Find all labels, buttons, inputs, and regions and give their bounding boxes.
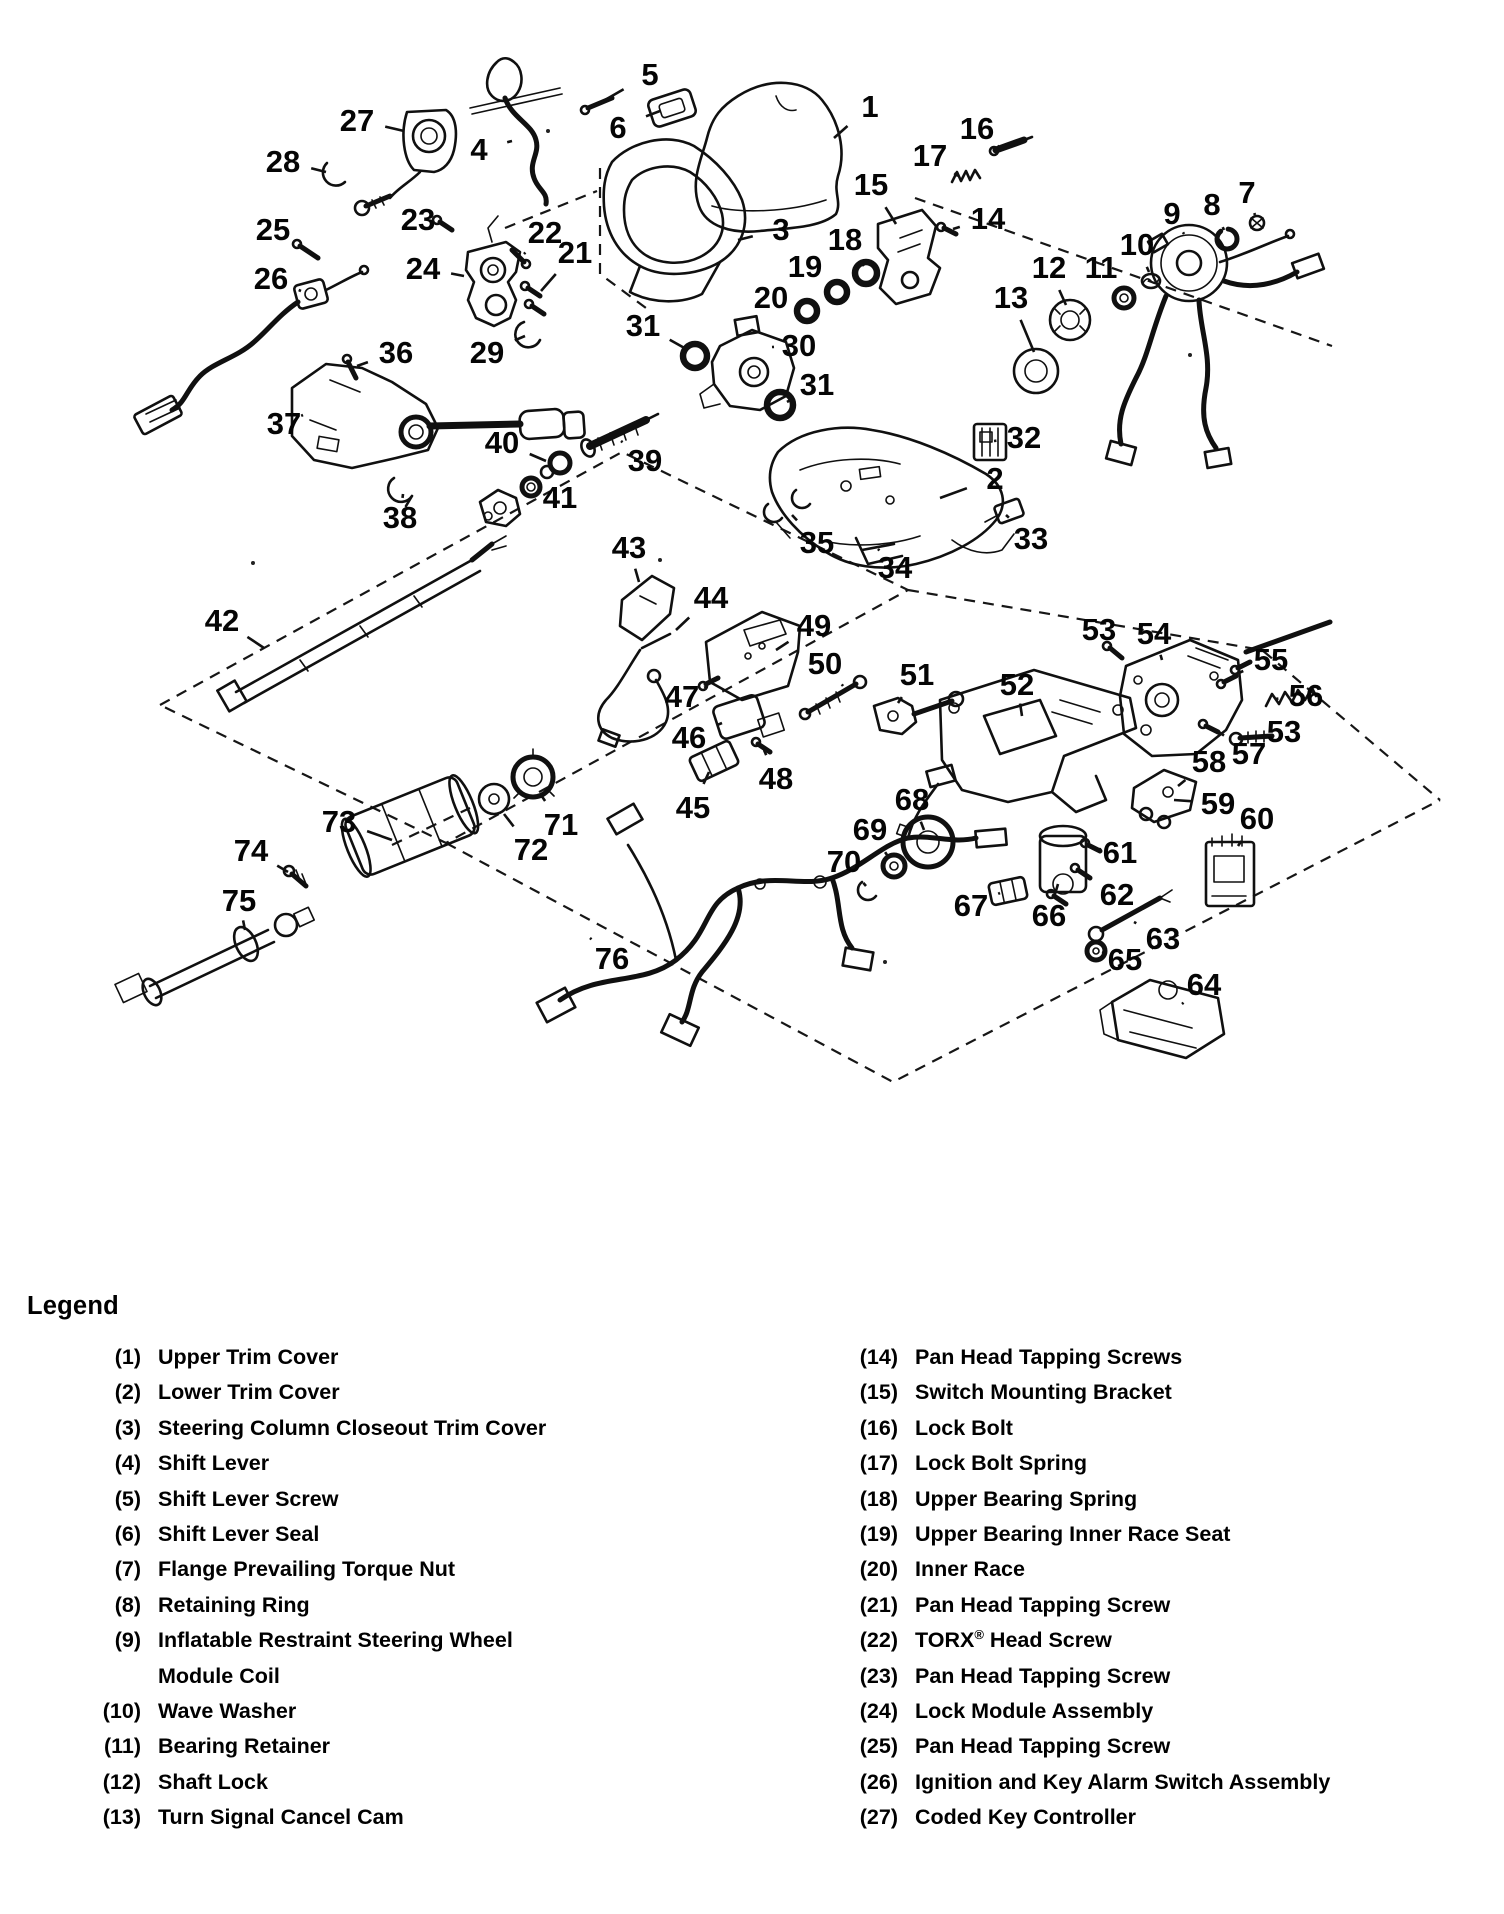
callout-number: 5 bbox=[641, 57, 658, 92]
callout-number: 52 bbox=[1000, 667, 1034, 702]
callout-number: 51 bbox=[900, 657, 934, 692]
legend-item-label: Shift Lever Screw bbox=[158, 1482, 338, 1517]
callout-leader bbox=[538, 489, 540, 490]
callout-number: 6 bbox=[609, 110, 626, 145]
legend-item-label: Upper Trim Cover bbox=[158, 1340, 338, 1375]
callout-number: 17 bbox=[913, 138, 947, 173]
inner-race-71 bbox=[513, 749, 554, 798]
column-switch-part bbox=[292, 364, 585, 468]
cancel-cam-part bbox=[1014, 349, 1058, 393]
callout-leader bbox=[1118, 289, 1119, 291]
callout-number: 11 bbox=[1085, 250, 1118, 285]
legend-item-number: (6) bbox=[88, 1517, 141, 1552]
legend-item-label: Shift Lever bbox=[158, 1446, 269, 1481]
legend-item-number: (4) bbox=[88, 1446, 141, 1481]
callout-leader bbox=[1234, 671, 1243, 675]
lock-cylinder-75 bbox=[115, 907, 314, 1008]
callout-leader bbox=[367, 831, 392, 840]
callout-number: 40 bbox=[485, 425, 519, 460]
legend-item: (9)Inflatable Restraint Steering Wheel bbox=[88, 1623, 546, 1658]
legend-item-number: (13) bbox=[88, 1800, 141, 1835]
callout-number: 47 bbox=[665, 679, 699, 714]
callout-leader bbox=[1174, 800, 1191, 801]
pivot-51 bbox=[874, 692, 963, 734]
legend-item-number: (12) bbox=[88, 1765, 141, 1800]
callout-leader bbox=[953, 227, 960, 229]
callout-number: 30 bbox=[782, 328, 816, 363]
steering-shaft-part bbox=[217, 536, 506, 711]
callout-number: 24 bbox=[406, 251, 441, 286]
legend-item-label: Pan Head Tapping Screw bbox=[915, 1729, 1170, 1764]
bearing-housing-part bbox=[700, 316, 794, 410]
legend-item-label: Pan Head Tapping Screw bbox=[915, 1659, 1170, 1694]
callout-leader bbox=[621, 441, 623, 442]
callout-number: 32 bbox=[1007, 420, 1041, 455]
screw-25 bbox=[293, 240, 318, 258]
callout-number: 56 bbox=[1289, 678, 1323, 713]
callout-number: 27 bbox=[340, 103, 374, 138]
legend-item-label: Ignition and Key Alarm Switch Assembly bbox=[915, 1765, 1330, 1800]
callout-number: 34 bbox=[878, 550, 913, 585]
legend-item: (24)Lock Module Assembly bbox=[845, 1694, 1330, 1729]
legend-item: (6)Shift Lever Seal bbox=[88, 1517, 546, 1552]
callout-number: 60 bbox=[1240, 801, 1274, 836]
callout-number: 45 bbox=[676, 790, 710, 825]
legend-item-label: Lower Trim Cover bbox=[158, 1375, 340, 1410]
legend-item-label: Lock Module Assembly bbox=[915, 1694, 1153, 1729]
callout-leader bbox=[1183, 232, 1184, 234]
callout-leader bbox=[504, 814, 514, 826]
legend-item-label: Turn Signal Cancel Cam bbox=[158, 1800, 404, 1835]
switch-mounting-bracket-part bbox=[878, 210, 940, 304]
legend-item: Module Coil bbox=[88, 1659, 546, 1694]
callout-leader bbox=[385, 127, 404, 131]
legend-item-label: Pan Head Tapping Screws bbox=[915, 1340, 1182, 1375]
callout-number: 33 bbox=[1014, 521, 1048, 556]
callout-number: 74 bbox=[234, 833, 269, 868]
callout-leader bbox=[998, 146, 1000, 147]
callout-number: 61 bbox=[1103, 835, 1137, 870]
module-60 bbox=[1206, 834, 1254, 906]
callout-leader bbox=[1111, 648, 1112, 650]
callout-number: 43 bbox=[612, 530, 646, 565]
callout-number: 13 bbox=[994, 280, 1028, 315]
c-clip-70 bbox=[858, 882, 876, 900]
legend-item-number: (10) bbox=[88, 1694, 141, 1729]
legend-item-number: (20) bbox=[845, 1552, 898, 1587]
legend-item: (25)Pan Head Tapping Screw bbox=[845, 1729, 1330, 1764]
screws-57 bbox=[1199, 720, 1218, 732]
legend-item-number: (17) bbox=[845, 1446, 898, 1481]
inner-race-part bbox=[797, 301, 817, 321]
callout-number: 19 bbox=[788, 249, 822, 284]
legend-item-label: Inflatable Restraint Steering Wheel bbox=[158, 1623, 513, 1658]
legend-item: (21)Pan Head Tapping Screw bbox=[845, 1588, 1330, 1623]
legend-item-number: (5) bbox=[88, 1482, 141, 1517]
ignition-alarm-switch-part bbox=[133, 266, 368, 435]
callout-leader bbox=[530, 454, 546, 461]
callout-leader bbox=[842, 684, 843, 686]
shift-lever-screw-part bbox=[581, 98, 612, 114]
callout-number: 1 bbox=[861, 89, 878, 124]
legend-item-label: Module Coil bbox=[158, 1659, 280, 1694]
bracket-49 bbox=[706, 612, 800, 700]
legend-item: (18)Upper Bearing Spring bbox=[845, 1482, 1330, 1517]
legend-item: (13)Turn Signal Cancel Cam bbox=[88, 1800, 546, 1835]
callout-number: 66 bbox=[1032, 898, 1066, 933]
nut-41 bbox=[522, 478, 540, 496]
lock-module-part bbox=[466, 216, 520, 326]
legend-item: (8)Retaining Ring bbox=[88, 1588, 546, 1623]
callout-number: 35 bbox=[800, 525, 834, 560]
legend-item: (12)Shaft Lock bbox=[88, 1765, 546, 1800]
cable-44 bbox=[598, 634, 670, 747]
legend-item-label: Steering Column Closeout Trim Cover bbox=[158, 1411, 546, 1446]
callout-leader bbox=[403, 494, 404, 498]
callout-leader bbox=[451, 274, 464, 277]
wiring-harness-76 bbox=[537, 765, 1007, 1046]
callout-leader bbox=[598, 89, 624, 104]
legend-item: (17)Lock Bolt Spring bbox=[845, 1446, 1330, 1481]
callout-number: 23 bbox=[401, 202, 435, 237]
callout-leader bbox=[1021, 320, 1034, 352]
callout-number: 36 bbox=[379, 335, 413, 370]
callout-number: 53 bbox=[1267, 714, 1301, 749]
callout-number: 72 bbox=[514, 832, 548, 867]
legend-item-number: (26) bbox=[845, 1765, 898, 1800]
solenoid-46 bbox=[712, 694, 784, 741]
callout-number: 39 bbox=[628, 443, 662, 478]
callout-leader bbox=[799, 307, 801, 308]
lock-housing-66 bbox=[1040, 826, 1086, 894]
legend-item: (5)Shift Lever Screw bbox=[88, 1482, 546, 1517]
callout-number: 49 bbox=[797, 608, 831, 643]
callout-number: 44 bbox=[694, 580, 729, 615]
callout-number: 22 bbox=[528, 215, 562, 250]
callout-leader bbox=[299, 290, 301, 291]
screw-50 bbox=[800, 676, 866, 719]
legend-item-label: Shift Lever Seal bbox=[158, 1517, 319, 1552]
callout-number: 76 bbox=[595, 941, 629, 976]
legend-item-number: (1) bbox=[88, 1340, 141, 1375]
callout-leader bbox=[635, 569, 639, 582]
callout-number: 20 bbox=[754, 280, 788, 315]
callout-leader bbox=[1147, 267, 1149, 272]
washer-72 bbox=[479, 784, 509, 814]
legend-item-label: Coded Key Controller bbox=[915, 1800, 1136, 1835]
callout-number: 16 bbox=[960, 111, 994, 146]
callout-layer: 1234567891011121314151617181920212223242… bbox=[205, 57, 1323, 1004]
callout-number: 46 bbox=[672, 720, 706, 755]
legend-item: (27)Coded Key Controller bbox=[845, 1800, 1330, 1835]
callout-leader bbox=[247, 637, 264, 648]
legend-item-label: TORX® Head Screw bbox=[915, 1623, 1112, 1658]
callout-number: 8 bbox=[1203, 187, 1220, 222]
callout-number: 63 bbox=[1146, 921, 1180, 956]
callout-number: 68 bbox=[895, 782, 929, 817]
exploded-diagram: 1234567891011121314151617181920212223242… bbox=[0, 0, 1504, 1100]
callout-leader bbox=[792, 515, 797, 520]
callout-leader bbox=[524, 253, 525, 254]
callout-leader bbox=[1161, 655, 1163, 660]
c-clip-28 bbox=[323, 163, 345, 186]
legend-item-number: (14) bbox=[845, 1340, 898, 1375]
callout-number: 75 bbox=[222, 883, 256, 918]
callout-number: 69 bbox=[853, 812, 887, 847]
legend-item-label: Flange Prevailing Torque Nut bbox=[158, 1552, 455, 1587]
legend-item-number: (16) bbox=[845, 1411, 898, 1446]
shaft-lock-part bbox=[1050, 300, 1090, 340]
upper-trim-cover-part bbox=[696, 83, 842, 232]
callout-leader bbox=[1006, 515, 1009, 518]
callout-number: 29 bbox=[470, 335, 504, 370]
callout-number: 14 bbox=[971, 201, 1006, 236]
callout-number: 25 bbox=[256, 212, 290, 247]
bracket-58 bbox=[1132, 770, 1196, 822]
callout-number: 21 bbox=[558, 235, 592, 270]
legend-item-number: (23) bbox=[845, 1659, 898, 1694]
callout-leader bbox=[704, 687, 706, 688]
callout-number: 67 bbox=[954, 888, 988, 923]
callout-leader bbox=[940, 488, 967, 498]
legend-item: (23)Pan Head Tapping Screw bbox=[845, 1659, 1330, 1694]
legend-item-label: Upper Bearing Spring bbox=[915, 1482, 1137, 1517]
bearing-31a bbox=[683, 344, 707, 368]
callout-number: 41 bbox=[543, 480, 577, 515]
callout-number: 64 bbox=[1187, 967, 1222, 1002]
legend-item: (3)Steering Column Closeout Trim Cover bbox=[88, 1411, 546, 1446]
callout-number: 73 bbox=[322, 804, 356, 839]
legend-item-number: (15) bbox=[845, 1375, 898, 1410]
closeout-trim-cover-part bbox=[604, 139, 745, 301]
legend-item-number: (25) bbox=[845, 1729, 898, 1764]
legend-column-right: (14)Pan Head Tapping Screws(15)Switch Mo… bbox=[845, 1340, 1330, 1835]
callout-leader bbox=[1223, 227, 1224, 230]
callout-number: 62 bbox=[1100, 877, 1134, 912]
bearing-retainer-part bbox=[1114, 288, 1134, 308]
callout-leader bbox=[1182, 1003, 1184, 1004]
callout-number: 12 bbox=[1032, 250, 1066, 285]
callout-leader bbox=[1178, 780, 1185, 786]
callout-number: 3 bbox=[772, 212, 789, 247]
callout-number: 55 bbox=[1254, 642, 1288, 677]
callout-leader bbox=[1254, 213, 1255, 215]
callout-number: 28 bbox=[266, 144, 300, 179]
c-clip-29 bbox=[515, 322, 540, 347]
lock-bolt-part bbox=[990, 137, 1032, 155]
callout-leader bbox=[998, 893, 1000, 894]
upper-bearing-spring-part bbox=[855, 262, 877, 284]
legend-item: (15)Switch Mounting Bracket bbox=[845, 1375, 1330, 1410]
legend-item-number: (9) bbox=[88, 1623, 141, 1658]
callout-number: 48 bbox=[759, 761, 793, 796]
callout-number: 31 bbox=[800, 367, 834, 402]
relay-block-part bbox=[974, 424, 1006, 460]
legend-item-number: (7) bbox=[88, 1552, 141, 1587]
callout-number: 18 bbox=[828, 222, 862, 257]
legend-item-label: Retaining Ring bbox=[158, 1588, 310, 1623]
legend-item-number: (2) bbox=[88, 1375, 141, 1410]
legend-item: (14)Pan Head Tapping Screws bbox=[845, 1340, 1330, 1375]
callout-number: 54 bbox=[1137, 616, 1172, 651]
shift-lever-seal-part bbox=[647, 88, 697, 128]
callout-leader bbox=[1134, 922, 1136, 923]
callout-number: 4 bbox=[470, 132, 488, 167]
housing-52 bbox=[940, 670, 1136, 812]
callout-number: 59 bbox=[1201, 786, 1235, 821]
callout-leader bbox=[357, 362, 368, 366]
screw-23 bbox=[433, 216, 452, 230]
legend-item-label: Lock Bolt bbox=[915, 1411, 1013, 1446]
parts-diagram-page: 1234567891011121314151617181920212223242… bbox=[0, 0, 1504, 1914]
callout-leader bbox=[921, 822, 924, 830]
callout-number: 50 bbox=[808, 646, 842, 681]
callout-leader bbox=[676, 618, 689, 631]
callout-leader bbox=[646, 111, 660, 116]
callout-number: 65 bbox=[1108, 942, 1142, 977]
legend-item-number: (19) bbox=[845, 1517, 898, 1552]
legend-item: (4)Shift Lever bbox=[88, 1446, 546, 1481]
legend-item-label: Shaft Lock bbox=[158, 1765, 268, 1800]
legend-item-number: (8) bbox=[88, 1588, 141, 1623]
legend-item-number: (22) bbox=[845, 1623, 898, 1658]
diagram-parts bbox=[115, 58, 1330, 1058]
callout-number: 71 bbox=[544, 807, 578, 842]
connector-67 bbox=[988, 876, 1028, 905]
bolt-74 bbox=[284, 866, 306, 886]
legend-item: (11)Bearing Retainer bbox=[88, 1729, 546, 1764]
legend-item-number: (3) bbox=[88, 1411, 141, 1446]
legend-item: (2)Lower Trim Cover bbox=[88, 1375, 546, 1410]
legend-item: (20)Inner Race bbox=[845, 1552, 1330, 1587]
callout-leader bbox=[301, 415, 303, 416]
legend-item: (26)Ignition and Key Alarm Switch Assemb… bbox=[845, 1765, 1330, 1800]
callout-leader bbox=[590, 938, 592, 939]
legend-item-number bbox=[88, 1659, 141, 1694]
callout-number: 10 bbox=[1120, 227, 1154, 262]
callout-number: 37 bbox=[267, 406, 301, 441]
screws-21 bbox=[521, 282, 544, 314]
torque-nut-part bbox=[1250, 216, 1264, 230]
legend-item-label: Switch Mounting Bracket bbox=[915, 1375, 1172, 1410]
screws-55 bbox=[1217, 662, 1250, 688]
callout-leader bbox=[541, 274, 556, 291]
legend-item: (16)Lock Bolt bbox=[845, 1411, 1330, 1446]
legend-item-label: Upper Bearing Inner Race Seat bbox=[915, 1517, 1230, 1552]
callout-number: 7 bbox=[1238, 175, 1255, 210]
callout-number: 58 bbox=[1192, 744, 1226, 779]
legend-column-left: (1)Upper Trim Cover(2)Lower Trim Cover(3… bbox=[88, 1340, 546, 1835]
legend-item: (10)Wave Washer bbox=[88, 1694, 546, 1729]
legend-item-number: (11) bbox=[88, 1729, 141, 1764]
legend-item-label: Wave Washer bbox=[158, 1694, 296, 1729]
bolt-48 bbox=[752, 738, 770, 752]
bracket-43 bbox=[620, 576, 674, 640]
callout-leader bbox=[776, 642, 789, 650]
callout-number: 70 bbox=[827, 844, 861, 879]
legend-item-number: (18) bbox=[845, 1482, 898, 1517]
callout-number: 2 bbox=[986, 461, 1003, 496]
legend-item-label: Lock Bolt Spring bbox=[915, 1446, 1087, 1481]
callout-number: 26 bbox=[254, 261, 288, 296]
callout-leader bbox=[1102, 952, 1104, 953]
legend-item-number: (21) bbox=[845, 1588, 898, 1623]
callout-leader bbox=[863, 883, 866, 886]
callout-number: 53 bbox=[1082, 612, 1116, 647]
legend-item-label: Bearing Retainer bbox=[158, 1729, 330, 1764]
legend-item: (7)Flange Prevailing Torque Nut bbox=[88, 1552, 546, 1587]
ring-69 bbox=[883, 855, 905, 877]
callout-number: 31 bbox=[626, 308, 660, 343]
legend-item: (19)Upper Bearing Inner Race Seat bbox=[845, 1517, 1330, 1552]
callout-leader bbox=[507, 141, 512, 142]
callout-leader bbox=[1088, 876, 1091, 878]
legend-item: (1)Upper Trim Cover bbox=[88, 1340, 546, 1375]
legend-item-number: (24) bbox=[845, 1694, 898, 1729]
callout-number: 38 bbox=[383, 500, 417, 535]
legend-item-label: Pan Head Tapping Screw bbox=[915, 1588, 1170, 1623]
callout-number: 42 bbox=[205, 603, 239, 638]
nut-65 bbox=[1087, 942, 1105, 960]
legend-item-number: (27) bbox=[845, 1800, 898, 1835]
legend-heading: Legend bbox=[27, 1292, 119, 1321]
legend-item: (22)TORX® Head Screw bbox=[845, 1623, 1330, 1658]
callout-number: 9 bbox=[1163, 196, 1180, 231]
callout-number: 15 bbox=[854, 167, 888, 202]
callout-number: 57 bbox=[1232, 736, 1266, 771]
legend-item-label: Inner Race bbox=[915, 1552, 1025, 1587]
